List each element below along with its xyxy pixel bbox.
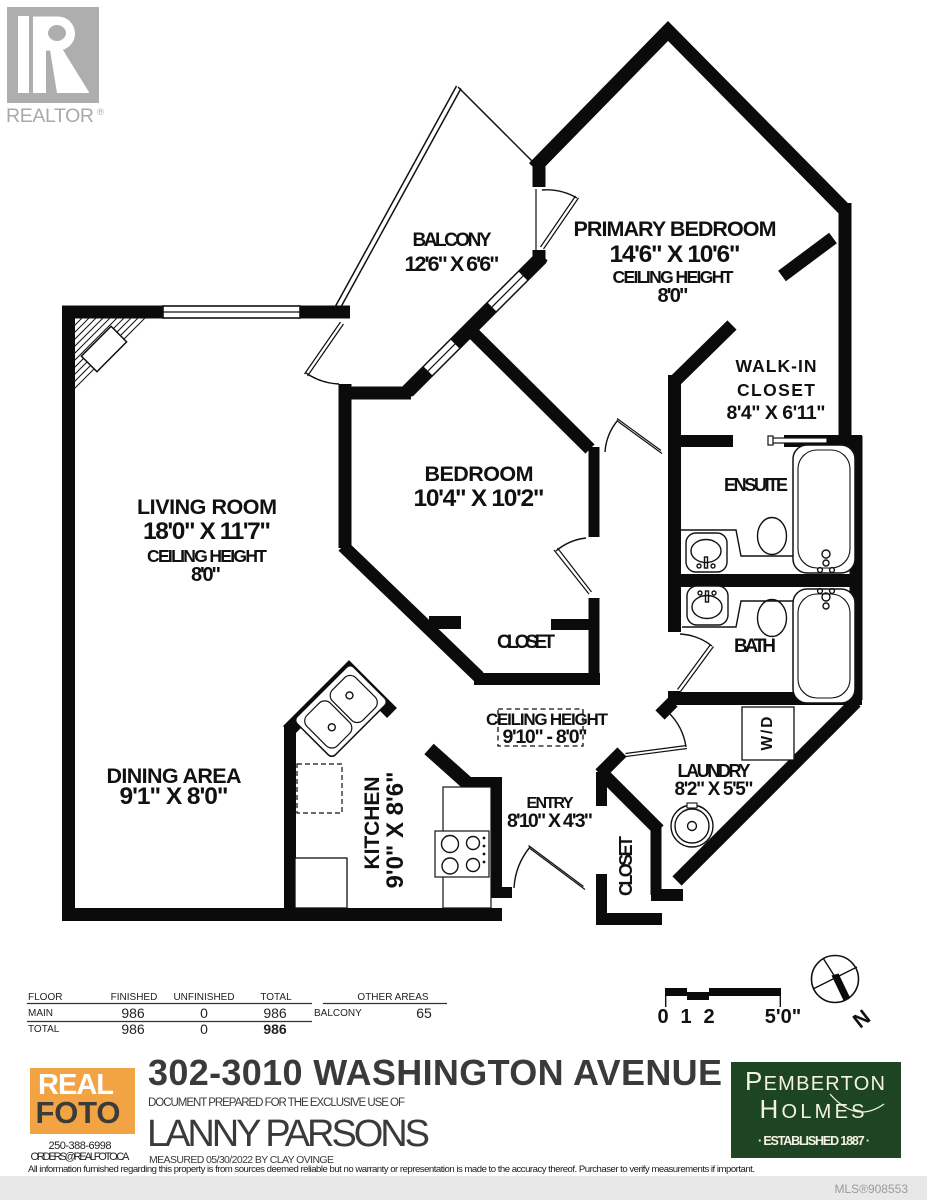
svg-text:5'0": 5'0" <box>765 1006 801 1028</box>
svg-text:KITCHEN: KITCHEN <box>361 777 384 870</box>
svg-text:PRIMARY BEDROOM: PRIMARY BEDROOM <box>574 217 777 241</box>
svg-text:8'10" X 4'3": 8'10" X 4'3" <box>507 810 593 832</box>
svg-text:BEDROOM: BEDROOM <box>425 462 534 486</box>
svg-text:CLOSET: CLOSET <box>497 632 555 653</box>
svg-text:MLS®908553: MLS®908553 <box>834 1182 908 1196</box>
svg-text:10'4" X 10'2": 10'4" X 10'2" <box>414 485 545 512</box>
svg-text:18'0" X 11'7": 18'0" X 11'7" <box>143 518 271 545</box>
svg-text:8'0": 8'0" <box>658 285 689 307</box>
svg-text:986: 986 <box>263 1021 287 1037</box>
svg-text:LAUNDRY: LAUNDRY <box>678 761 751 781</box>
svg-text:8'2" X 5'5": 8'2" X 5'5" <box>675 779 754 800</box>
svg-text:9'0" X 8'6": 9'0" X 8'6" <box>382 772 409 889</box>
svg-text:14'6" X 10'6": 14'6" X 10'6" <box>610 241 741 268</box>
svg-text:986: 986 <box>121 1005 145 1021</box>
svg-text:MAIN: MAIN <box>28 1008 53 1019</box>
svg-text:BALCONY: BALCONY <box>314 1008 362 1019</box>
svg-text:BALCONY: BALCONY <box>413 230 492 251</box>
svg-text:986: 986 <box>121 1021 145 1037</box>
svg-text:W/D: W/D <box>759 717 776 751</box>
svg-text:CEILING HEIGHT: CEILING HEIGHT <box>613 267 734 287</box>
svg-text:UNFINISHED: UNFINISHED <box>173 992 234 1003</box>
svg-text:12'6" X 6'6": 12'6" X 6'6" <box>405 252 500 276</box>
svg-text:LIVING ROOM: LIVING ROOM <box>137 495 277 519</box>
svg-text:®: ® <box>97 107 104 118</box>
svg-text:TOTAL: TOTAL <box>28 1024 60 1035</box>
svg-text:FOTO: FOTO <box>36 1095 121 1130</box>
svg-text:986: 986 <box>263 1005 287 1021</box>
svg-text:TOTAL: TOTAL <box>260 992 292 1003</box>
svg-text:CEILING HEIGHT: CEILING HEIGHT <box>147 546 267 566</box>
svg-text:WALK-IN: WALK-IN <box>736 356 817 376</box>
svg-text:LANNY PARSONS: LANNY PARSONS <box>147 1113 430 1155</box>
svg-text:0: 0 <box>200 1021 208 1037</box>
svg-text:DOCUMENT PREPARED FOR THE EXCL: DOCUMENT PREPARED FOR THE EXCLUSIVE USE … <box>148 1097 405 1109</box>
svg-text:OTHER AREAS: OTHER AREAS <box>357 992 428 1003</box>
svg-text:8'0": 8'0" <box>191 564 221 586</box>
svg-text:FINISHED: FINISHED <box>111 992 158 1003</box>
svg-text:ORDERS@REALFOTO.CA: ORDERS@REALFOTO.CA <box>31 1151 131 1163</box>
svg-text:2: 2 <box>703 1006 714 1028</box>
svg-text:0: 0 <box>200 1005 208 1021</box>
svg-text:CLOSET: CLOSET <box>737 380 815 400</box>
svg-text:ENSUITE: ENSUITE <box>724 475 788 495</box>
svg-text:FLOOR: FLOOR <box>28 992 62 1003</box>
svg-text:65: 65 <box>416 1005 432 1021</box>
svg-text:1: 1 <box>680 1006 691 1028</box>
svg-text:302-3010 WASHINGTON AVENUE: 302-3010 WASHINGTON AVENUE <box>148 1052 722 1093</box>
svg-text:8'4" X 6'11": 8'4" X 6'11" <box>727 402 826 424</box>
svg-text:BATH: BATH <box>734 636 776 657</box>
svg-text:· ESTABLISHED 1887 ·: · ESTABLISHED 1887 · <box>758 1134 870 1148</box>
svg-text:CLOSET: CLOSET <box>616 836 636 896</box>
svg-text:9'1" X 8'0": 9'1" X 8'0" <box>120 783 229 810</box>
svg-text:REALTOR: REALTOR <box>6 105 94 127</box>
svg-text:9'10" - 8'0": 9'10" - 8'0" <box>503 726 588 748</box>
svg-text:0: 0 <box>657 1006 668 1028</box>
svg-text:All information furnished rega: All information furnished regarding this… <box>28 1164 755 1175</box>
